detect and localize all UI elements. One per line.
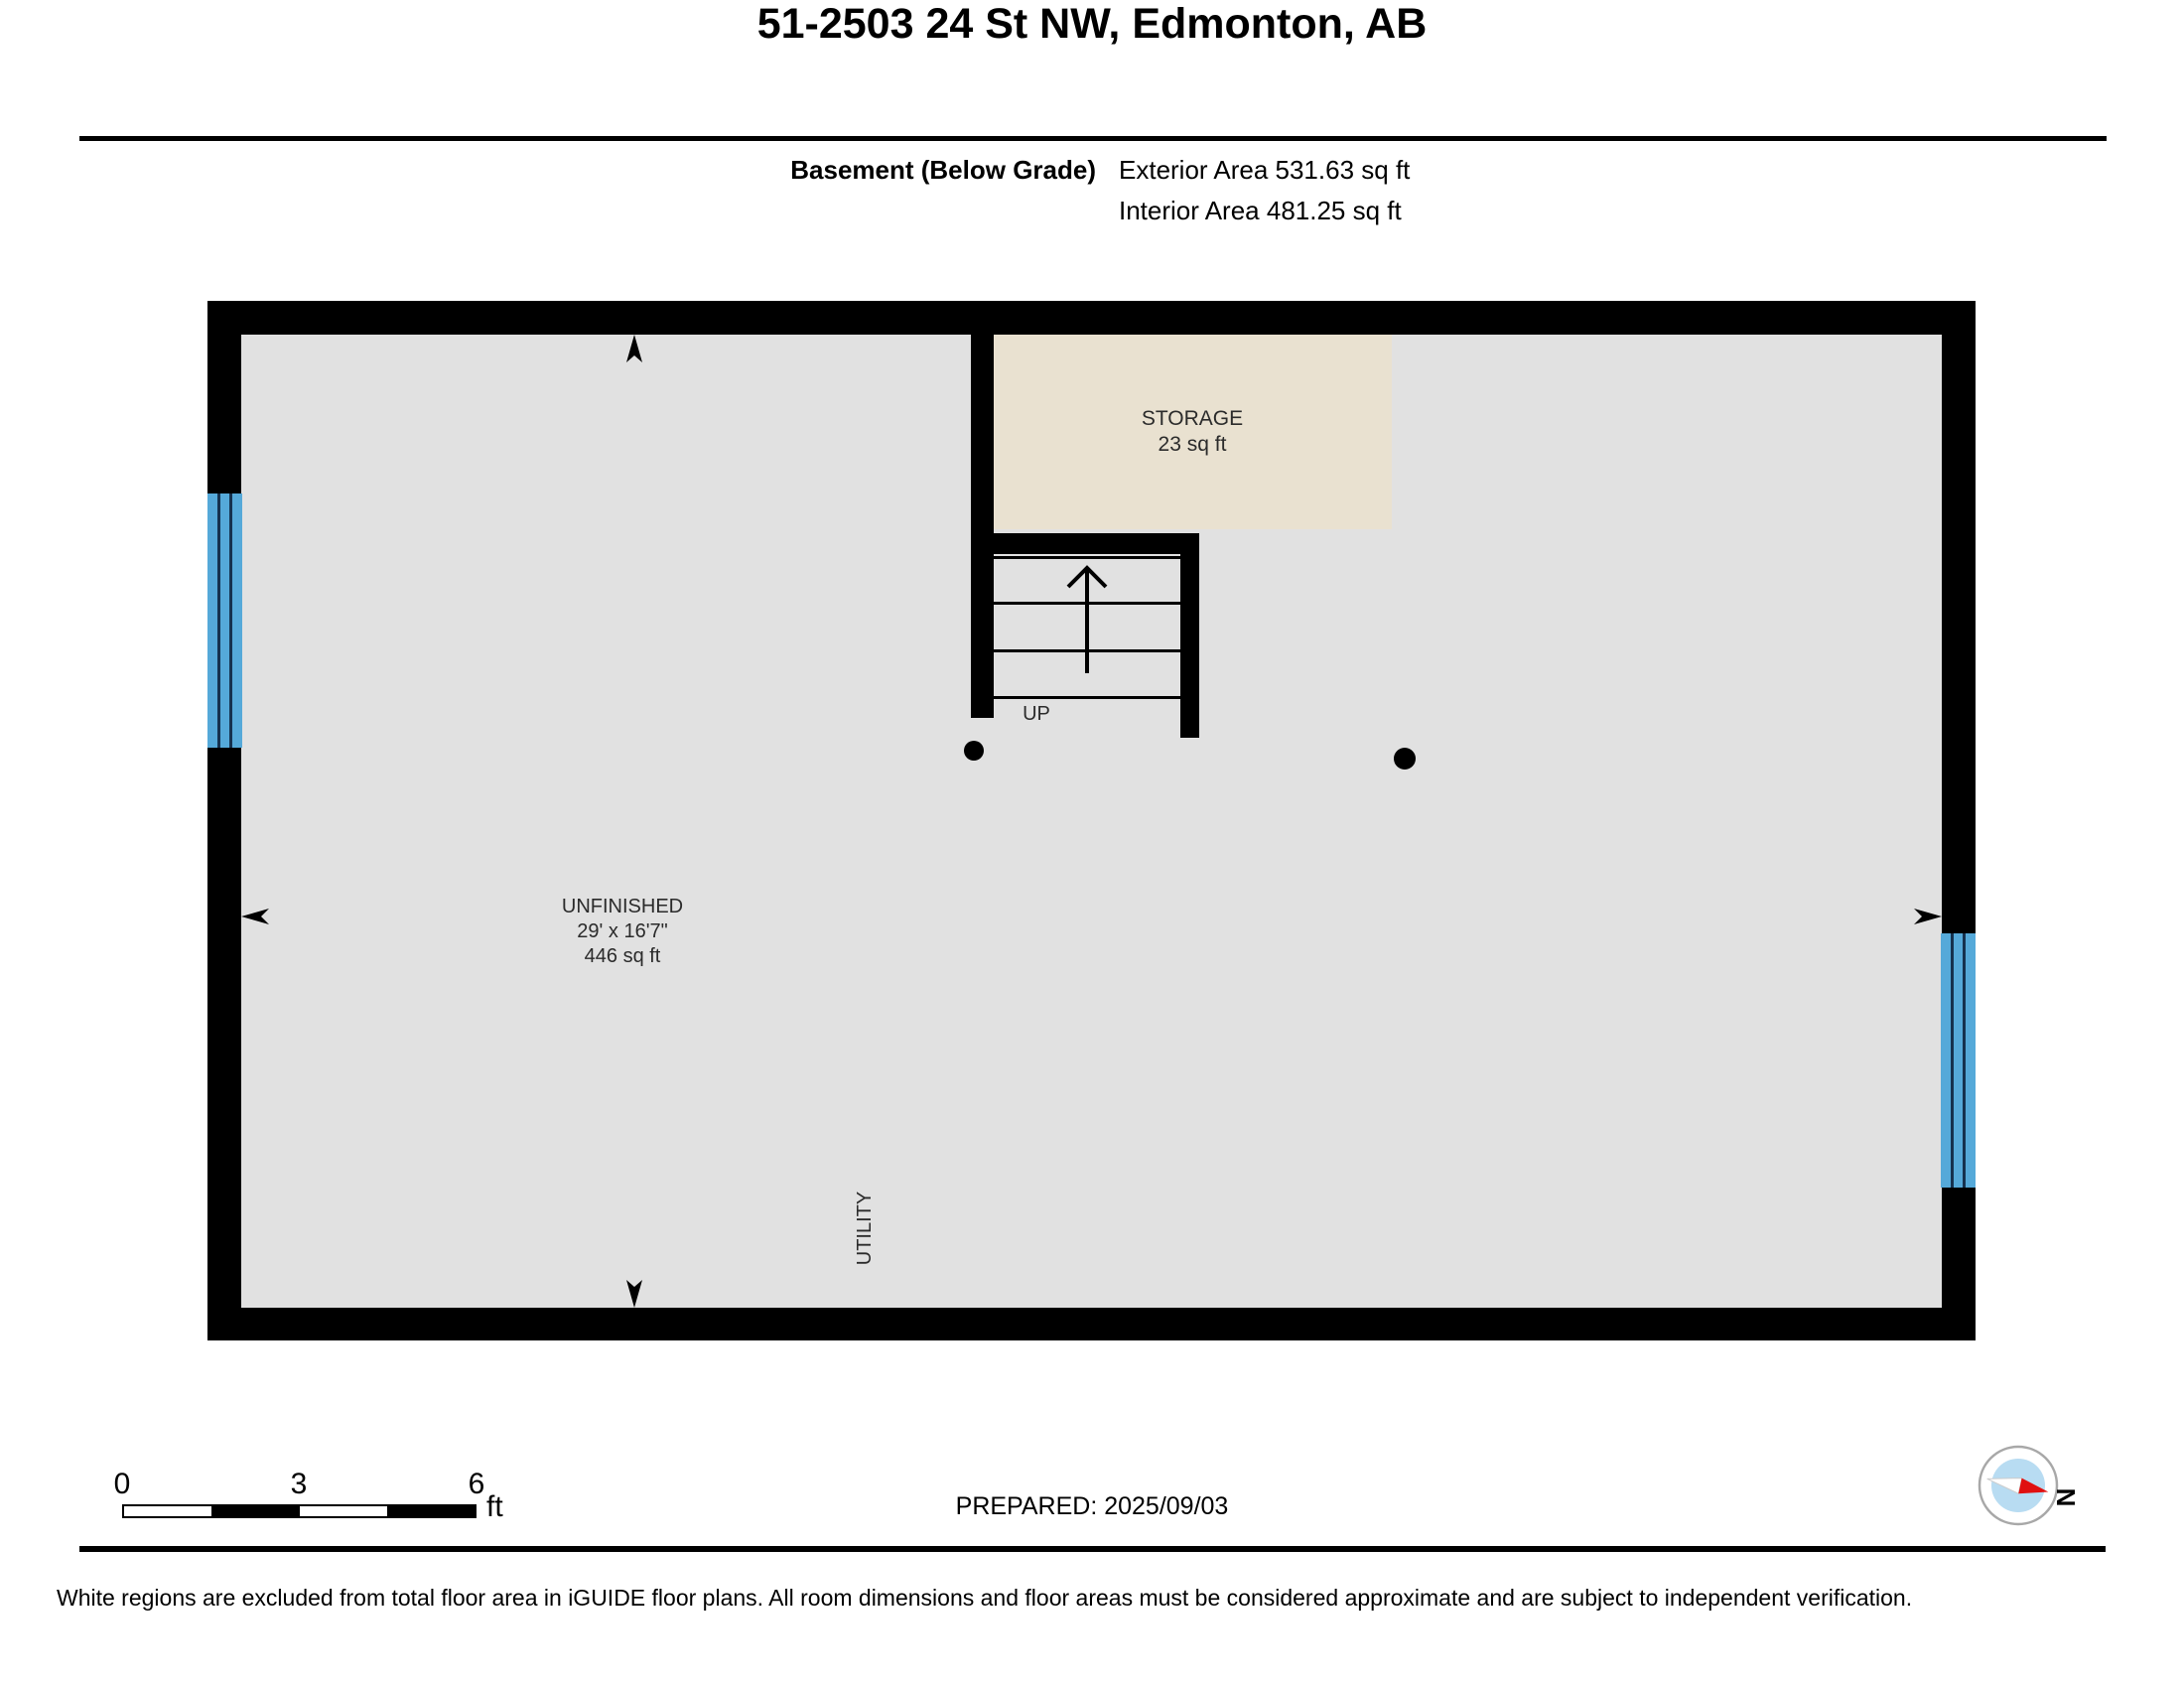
window-pane-line <box>229 493 232 748</box>
scale-segment <box>211 1506 299 1516</box>
compass-icon <box>1974 1442 2063 1531</box>
header-divider <box>79 136 2107 141</box>
room-unfinished-label: UNFINISHED 29' x 16'7" 446 sq ft <box>474 895 771 969</box>
scale-bar <box>122 1504 477 1518</box>
window-pane-line <box>1951 933 1954 1188</box>
stair-up-arrow <box>1063 561 1111 678</box>
room-unfinished-name: UNFINISHED <box>474 895 771 919</box>
wall-marker-arrow-left <box>241 903 271 930</box>
window-right <box>1941 933 1976 1188</box>
scale-unit: ft <box>486 1490 503 1524</box>
window-pane-line <box>1963 933 1966 1188</box>
room-storage-area: 23 sq ft <box>1142 432 1243 458</box>
scale-segment <box>124 1506 211 1516</box>
room-unfinished-dimensions: 29' x 16'7" <box>474 919 771 944</box>
floorplan-page: 51-2503 24 St NW, Edmonton, AB Basement … <box>0 0 2184 1688</box>
storage-bottom-wall <box>971 533 1199 554</box>
floor-label: Basement (Below Grade) <box>695 155 1096 186</box>
wall-marker-arrow-bottom <box>620 1279 650 1309</box>
footer-divider <box>79 1546 2106 1552</box>
scale-tick-3: 3 <box>269 1468 329 1501</box>
stair-tread-line <box>994 696 1180 699</box>
column-dot <box>1394 748 1416 770</box>
scale-tick-0: 0 <box>92 1468 152 1501</box>
room-utility-label: UTILITY <box>854 1169 878 1288</box>
room-storage-name: STORAGE <box>1142 406 1243 432</box>
scale-segment <box>300 1506 387 1516</box>
disclaimer-text: White regions are excluded from total fl… <box>57 1585 1943 1612</box>
stair-tread-line <box>994 556 1180 559</box>
room-unfinished-area: 446 sq ft <box>474 944 771 969</box>
prepared-date: PREPARED: 2025/09/03 <box>844 1492 1340 1521</box>
window-left <box>207 493 242 748</box>
wall-marker-arrow-right <box>1912 903 1942 930</box>
stairwell-right-wall <box>1180 533 1199 738</box>
column-dot <box>964 741 984 761</box>
room-storage: STORAGE 23 sq ft <box>993 335 1392 529</box>
exterior-area-text: Exterior Area 531.63 sq ft <box>1119 155 1410 186</box>
stair-up-label: UP <box>997 704 1076 724</box>
interior-area-text: Interior Area 481.25 sq ft <box>1119 196 1402 226</box>
scale-segment <box>387 1506 475 1516</box>
floorplan-canvas: STORAGE 23 sq ft UP <box>207 301 1976 1340</box>
wall-marker-arrow-top <box>620 335 650 364</box>
stairwell-left-wall <box>971 335 994 718</box>
window-pane-line <box>217 493 220 748</box>
compass-north-label: N <box>2051 1482 2081 1512</box>
page-title: 51-2503 24 St NW, Edmonton, AB <box>0 0 2184 49</box>
room-storage-label: STORAGE 23 sq ft <box>1142 406 1243 458</box>
